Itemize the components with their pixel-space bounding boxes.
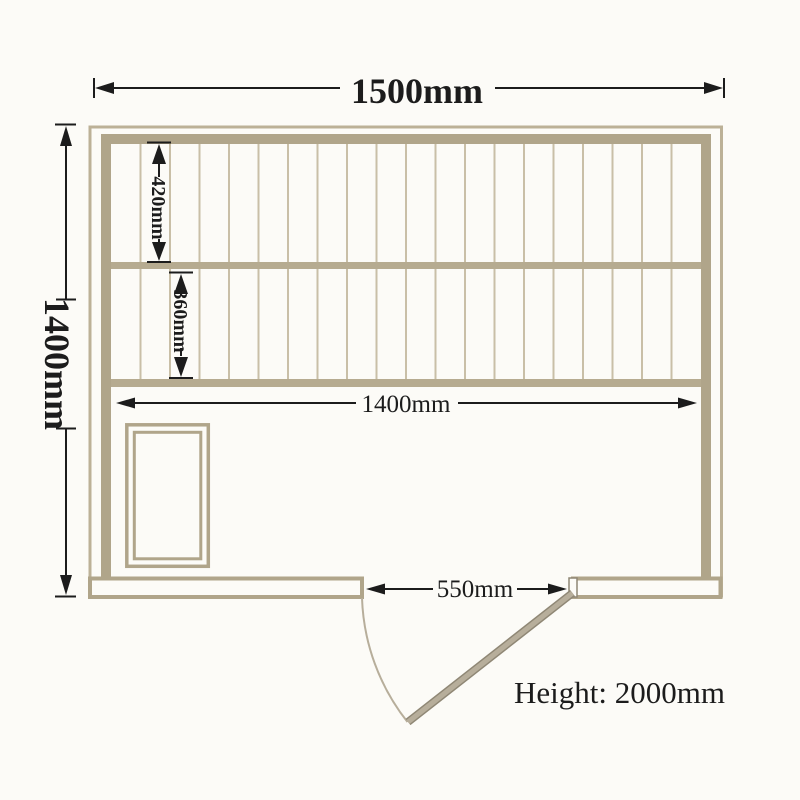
bottom-wall-left-segment xyxy=(90,579,362,598)
arrow-right-icon xyxy=(548,584,567,595)
dim-bench-upper-label: 420mm xyxy=(147,176,169,240)
dim-bench-lower-label: 360mm xyxy=(169,289,191,353)
dim-door-width: 550mm xyxy=(366,576,567,603)
dim-bench-lower: 360mm xyxy=(169,273,193,379)
arrow-left-icon xyxy=(116,398,135,409)
dim-bench-upper: 420mm xyxy=(147,143,171,263)
bottom-wall-right-segment xyxy=(573,579,721,598)
arrow-down-icon xyxy=(152,242,166,261)
arrow-right-icon xyxy=(704,82,723,94)
arrow-left-icon xyxy=(95,82,114,94)
heater-outer-frame xyxy=(127,425,209,567)
bench-slats xyxy=(141,144,672,379)
arrow-down-icon xyxy=(174,357,188,377)
dim-door-width-label: 550mm xyxy=(437,576,514,603)
dim-inner-width: 1400mm xyxy=(116,391,697,418)
door-swing-arc xyxy=(362,598,408,722)
arrow-up-icon xyxy=(60,126,72,146)
dim-width-total-label: 1500mm xyxy=(351,71,483,111)
height-label: Height: 2000mm xyxy=(514,675,725,710)
arrow-up-icon xyxy=(152,144,166,164)
floor-plan-canvas: 1500mm 1400mm 420mm 360mm xyxy=(0,0,800,800)
heater xyxy=(127,425,209,567)
arrow-left-icon xyxy=(366,584,385,595)
dim-depth-total: 1400mm xyxy=(37,125,77,597)
bench-middle-rail xyxy=(111,262,701,269)
dim-depth-total-label: 1400mm xyxy=(37,298,77,430)
dim-inner-width-label: 1400mm xyxy=(362,391,451,418)
bench-front-rail xyxy=(111,379,701,387)
arrow-down-icon xyxy=(60,575,72,595)
dim-width-total: 1500mm xyxy=(94,71,724,111)
sauna-floor-plan: 1500mm 1400mm 420mm 360mm xyxy=(0,0,800,800)
arrow-right-icon xyxy=(678,398,697,409)
